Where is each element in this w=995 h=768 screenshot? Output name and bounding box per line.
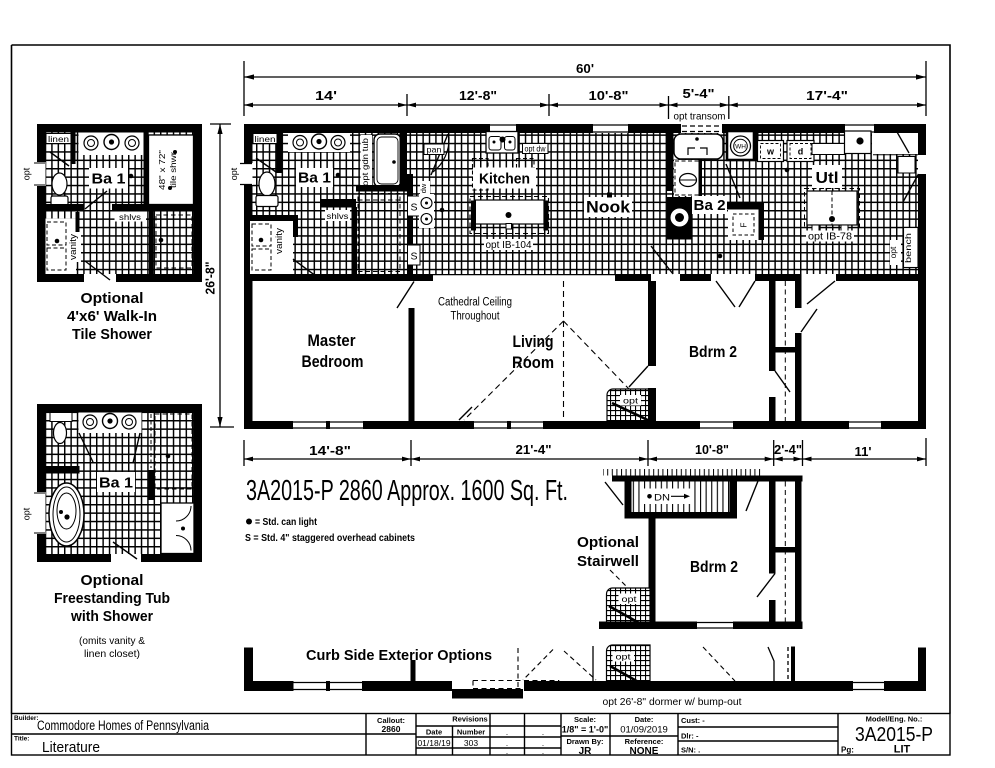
- svg-text:Ba 1: Ba 1: [99, 475, 133, 492]
- svg-text:Bdrm 2: Bdrm 2: [689, 344, 737, 361]
- svg-text:10'-8": 10'-8": [589, 89, 629, 103]
- svg-text:2'-4": 2'-4": [774, 443, 802, 457]
- svg-text:10'-8": 10'-8": [695, 443, 729, 457]
- svg-text:.: .: [542, 728, 544, 737]
- svg-text:opt dw: opt dw: [525, 145, 546, 154]
- svg-text:Living: Living: [513, 333, 554, 351]
- svg-text:14'-8": 14'-8": [309, 444, 351, 458]
- svg-text:14': 14': [315, 89, 337, 103]
- svg-text:11': 11': [855, 445, 872, 459]
- svg-text:Cust: -: Cust: -: [681, 716, 705, 725]
- svg-text:Date:: Date:: [635, 715, 654, 724]
- svg-text:S: S: [410, 251, 417, 263]
- svg-text:Dlr: -: Dlr: -: [681, 732, 699, 741]
- svg-text:with Shower: with Shower: [70, 608, 153, 625]
- svg-text:17'-4": 17'-4": [806, 89, 848, 103]
- svg-text:S/N: .: S/N: .: [681, 746, 700, 755]
- svg-text:60': 60': [576, 62, 594, 76]
- svg-text:tile shwr: tile shwr: [168, 152, 178, 188]
- svg-text:opt transom: opt transom: [674, 112, 726, 123]
- svg-text:S = Std. 4" staggered overhead: S = Std. 4" staggered overhead cabinets: [245, 533, 415, 544]
- svg-text:(omits vanity &: (omits vanity &: [79, 636, 145, 647]
- svg-text:5'-4": 5'-4": [683, 87, 715, 101]
- svg-text:1/8" = 1'-0": 1/8" = 1'-0": [562, 725, 608, 735]
- svg-text:opt IB-104: opt IB-104: [486, 240, 532, 251]
- svg-text:linen: linen: [255, 134, 276, 144]
- svg-text:Master: Master: [308, 331, 356, 350]
- svg-text:Bedroom: Bedroom: [302, 352, 364, 371]
- svg-text:Bdrm 2: Bdrm 2: [690, 559, 738, 576]
- svg-text:shlvs: shlvs: [327, 211, 349, 221]
- svg-text:opt 26'-8" dormer w/ bump-out: opt 26'-8" dormer w/ bump-out: [603, 696, 742, 708]
- svg-text:shlvs: shlvs: [119, 212, 141, 222]
- svg-text:Builder:: Builder:: [14, 715, 39, 722]
- svg-text:opt gdn tub: opt gdn tub: [360, 138, 370, 186]
- svg-text:bench: bench: [903, 233, 913, 263]
- svg-text:S: S: [410, 202, 417, 214]
- svg-text:4'x6' Walk-In: 4'x6' Walk-In: [67, 308, 157, 325]
- svg-text:opt: opt: [22, 507, 32, 520]
- svg-text:Drawn By:: Drawn By:: [566, 737, 603, 746]
- svg-text:Tile Shower: Tile Shower: [72, 326, 152, 343]
- svg-text:opt: opt: [888, 246, 898, 258]
- svg-text:Utl: Utl: [816, 170, 839, 187]
- svg-text:opt: opt: [22, 167, 32, 180]
- svg-text:Title:: Title:: [14, 736, 29, 743]
- svg-text:w: w: [766, 147, 775, 157]
- svg-text:= Std. can light: = Std. can light: [255, 517, 318, 528]
- svg-text:LIT: LIT: [894, 744, 911, 756]
- svg-text:opt: opt: [616, 652, 632, 662]
- svg-text:Kitchen: Kitchen: [479, 171, 530, 188]
- svg-text:NONE: NONE: [630, 746, 659, 757]
- svg-text:01/09/2019: 01/09/2019: [620, 725, 668, 736]
- svg-text:Ba 1: Ba 1: [92, 171, 126, 188]
- svg-text:Commodore Homes of Pennsylvani: Commodore Homes of Pennsylvania: [37, 718, 209, 733]
- svg-text:linen: linen: [48, 134, 69, 144]
- svg-text:vanity: vanity: [274, 227, 284, 254]
- svg-text:.: .: [506, 747, 508, 756]
- svg-text:WH: WH: [735, 144, 746, 151]
- svg-text:DN: DN: [654, 493, 670, 503]
- svg-text:d: d: [798, 147, 804, 157]
- svg-text:Optional: Optional: [81, 290, 144, 307]
- svg-text:F: F: [740, 222, 749, 227]
- svg-text:opt IB-78: opt IB-78: [808, 232, 852, 243]
- svg-text:Date: Date: [426, 728, 442, 737]
- svg-text:Freestanding Tub: Freestanding Tub: [54, 590, 170, 607]
- svg-text:Pg:: Pg:: [841, 746, 854, 755]
- svg-text:opt: opt: [229, 167, 239, 180]
- svg-text:Scale:: Scale:: [574, 715, 596, 724]
- svg-text:Number: Number: [457, 728, 485, 737]
- svg-text:vanity: vanity: [68, 233, 78, 260]
- svg-text:12'-8": 12'-8": [459, 89, 497, 103]
- svg-text:opt: opt: [623, 396, 639, 406]
- svg-text:Nook: Nook: [586, 199, 631, 217]
- svg-text:303: 303: [464, 738, 478, 748]
- svg-text:opt: opt: [622, 594, 638, 604]
- svg-text:26'-8": 26'-8": [204, 261, 218, 294]
- svg-text:Revisions: Revisions: [452, 715, 487, 724]
- svg-text:.: .: [506, 728, 508, 737]
- svg-text:01/18/19: 01/18/19: [417, 738, 450, 748]
- svg-text:Literature: Literature: [42, 740, 100, 756]
- svg-text:Curb Side Exterior Options: Curb Side Exterior Options: [306, 648, 492, 664]
- svg-text:Cathedral Ceiling: Cathedral Ceiling: [438, 297, 512, 309]
- svg-text:Reference:: Reference:: [625, 737, 664, 746]
- svg-text:48" x 72": 48" x 72": [157, 150, 167, 190]
- svg-text:Ba 1: Ba 1: [298, 170, 331, 187]
- svg-text:Optional: Optional: [577, 535, 639, 551]
- svg-text:3A2015-P 2860 Approx. 1600 Sq: 3A2015-P 2860 Approx. 1600 Sq. Ft.: [246, 475, 568, 507]
- svg-text:21'-4": 21'-4": [516, 443, 552, 457]
- svg-text:Model/Eng. No.:: Model/Eng. No.:: [866, 715, 923, 724]
- svg-text:Room: Room: [512, 354, 554, 372]
- svg-text:.: .: [542, 747, 544, 756]
- svg-text:Ba 2: Ba 2: [694, 197, 726, 214]
- svg-text:pan: pan: [427, 145, 442, 155]
- svg-text:JR: JR: [579, 746, 593, 757]
- svg-text:Optional: Optional: [81, 572, 144, 589]
- svg-text:Throughout: Throughout: [451, 311, 501, 323]
- svg-text:Stairwell: Stairwell: [577, 554, 639, 570]
- svg-text:2860: 2860: [382, 724, 401, 734]
- svg-text:dw: dw: [419, 183, 428, 193]
- svg-text:linen closet): linen closet): [84, 649, 140, 660]
